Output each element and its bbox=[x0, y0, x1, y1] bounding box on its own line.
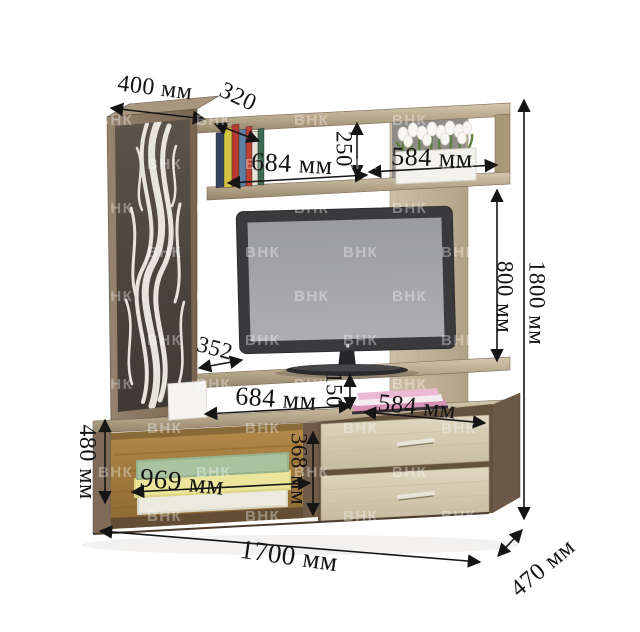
dim-base-height: 480 мм bbox=[75, 424, 99, 499]
dim-tv-niche-width: 684 мм bbox=[234, 383, 317, 415]
dim-right-opening-height: 800 мм bbox=[494, 261, 517, 333]
base-right-side bbox=[492, 393, 520, 513]
dim-upper-shelf-width: 684 мм bbox=[251, 149, 334, 179]
white-box bbox=[168, 381, 207, 420]
left-cabinet bbox=[107, 96, 219, 421]
dim-tv-niche-height: 150 bbox=[323, 372, 346, 408]
furniture-dimension-diagram: ВНКВНКВНКВНКВНКВНКВНКВНКВНКВНКВНКВНКВНКВ… bbox=[0, 0, 640, 632]
dim-drawer-section-height: 368 мм bbox=[288, 433, 311, 505]
tv-screen bbox=[247, 217, 444, 341]
dim-upper-right-shelf-width: 584 мм bbox=[391, 144, 473, 173]
dim-upper-shelf-height: 250 bbox=[333, 131, 356, 167]
dim-total-height: 1800 мм bbox=[526, 261, 549, 345]
drawer-bottom bbox=[321, 467, 489, 521]
